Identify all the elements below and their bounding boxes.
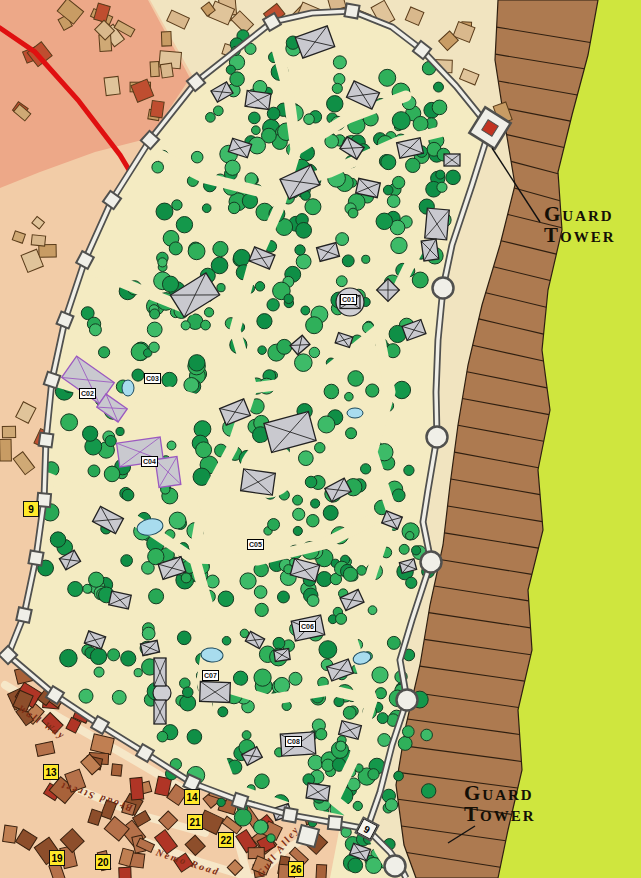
map-marker-13[interactable]: 13	[43, 764, 59, 780]
location-label-c07[interactable]: C07	[202, 670, 219, 681]
watch-tower	[297, 825, 319, 847]
round-tower	[421, 552, 442, 573]
map-marker-14[interactable]: 14	[184, 789, 200, 805]
watch-tower	[37, 493, 51, 507]
map-marker-22[interactable]: 22	[218, 832, 234, 848]
guard-tower-s-line1: Guard	[464, 783, 536, 804]
guard-tower-label-south: Guard Tower	[464, 783, 536, 825]
watch-tower	[16, 607, 31, 622]
city-map-stage: Guard Tower Guard Tower C01C02C03C04C05C…	[0, 0, 641, 878]
watch-tower	[344, 3, 359, 18]
watch-tower	[232, 793, 248, 809]
map-marker-9[interactable]: 9	[23, 501, 39, 517]
map-marker-20[interactable]: 20	[95, 854, 111, 870]
location-label-c04[interactable]: C04	[141, 456, 158, 467]
location-label-c05[interactable]: C05	[247, 539, 264, 550]
location-label-c08[interactable]: C08	[285, 736, 302, 747]
map-marker-26[interactable]: 26	[288, 861, 304, 877]
round-tower	[397, 690, 418, 711]
watch-tower	[282, 807, 297, 822]
watch-tower	[328, 816, 342, 830]
round-tower	[385, 856, 406, 877]
watch-tower	[28, 550, 43, 565]
map-marker-21[interactable]: 21	[187, 814, 203, 830]
round-tower	[433, 278, 454, 299]
location-label-c06[interactable]: C06	[299, 621, 316, 632]
location-label-c01[interactable]: C01	[340, 294, 357, 305]
round-tower	[427, 427, 448, 448]
location-label-c02[interactable]: C02	[79, 388, 96, 399]
city-map-svg[interactable]	[0, 0, 641, 878]
guard-tower-ne-line2: Tower	[544, 225, 616, 246]
map-marker-19[interactable]: 19	[49, 850, 65, 866]
location-label-c03[interactable]: C03	[144, 373, 161, 384]
guard-tower-s-line2: Tower	[464, 804, 536, 825]
watch-tower	[44, 372, 60, 388]
guard-tower-ne-line1: Guard	[544, 204, 616, 225]
watch-tower	[39, 433, 54, 448]
guard-tower-label-northeast: Guard Tower	[544, 204, 616, 246]
